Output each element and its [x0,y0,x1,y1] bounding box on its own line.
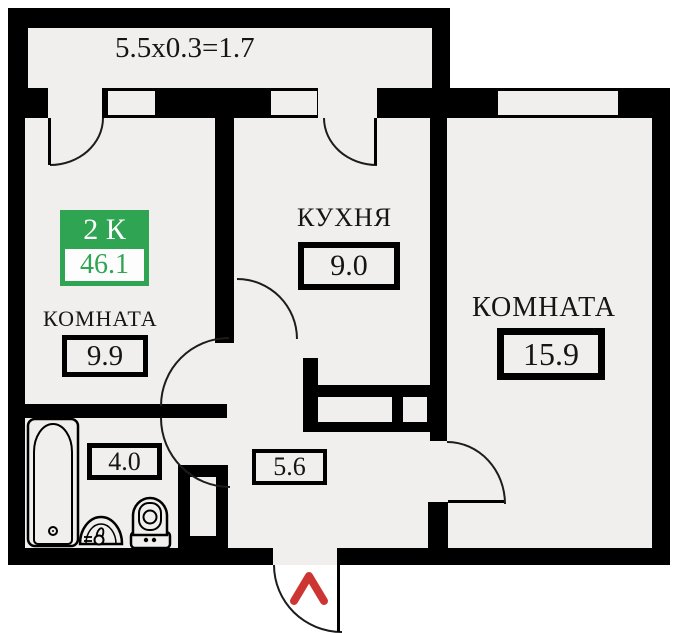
kitchen-name: КУХНЯ [297,203,392,233]
entrance-opening [273,548,337,565]
vent-inset-2 [403,397,427,422]
wall-bottom [8,548,670,565]
wall-left [8,118,25,565]
balcony-dimension-label: 5.5x0.3=1.7 [115,32,255,65]
wall-balcony-right [432,8,450,88]
balcony-door-opening-kitchen [318,88,377,118]
room-left-name: КОМНАТА [43,306,158,332]
balcony-door-opening-left [48,88,102,118]
window-kitchen [271,91,317,115]
wall-room1-kitchen [215,118,234,343]
room-right-area: 15.9 [497,328,605,380]
total-area-value: 46.1 [65,249,144,281]
floor-plan: 5.5x0.3=1.7 2 К 46.1 КОМНАТА 9.9 КУХНЯ 9… [0,0,678,633]
wall-kitchen-stub [303,358,318,385]
door-leaf-balcony-left [48,118,51,165]
door-leaf-balcony-kitchen [374,118,377,165]
wall-room1-bottom [22,404,227,418]
wall-balcony-left [8,8,28,88]
vent-inset-1 [318,397,392,422]
wall-right [652,88,670,565]
room-right-name: КОМНАТА [472,292,616,324]
apartment-type-badge: 2 К 46.1 [60,210,149,286]
door-leaf-entrance [337,565,340,632]
window-room-right [498,91,618,115]
apartment-type-label: 2 К [60,210,149,249]
wall-balcony-top [8,8,450,28]
room-left-area: 9.9 [62,335,148,377]
wall-kitchen-room2 [430,118,447,441]
bathroom-area: 4.0 [87,443,162,480]
door-leaf-room2 [448,500,504,503]
kitchen-area: 9.0 [298,242,400,290]
hallway-area: 5.6 [252,449,327,485]
wall-room2-stub [428,502,448,548]
door-arc-entrance [273,565,342,633]
window-room-left [108,91,155,115]
